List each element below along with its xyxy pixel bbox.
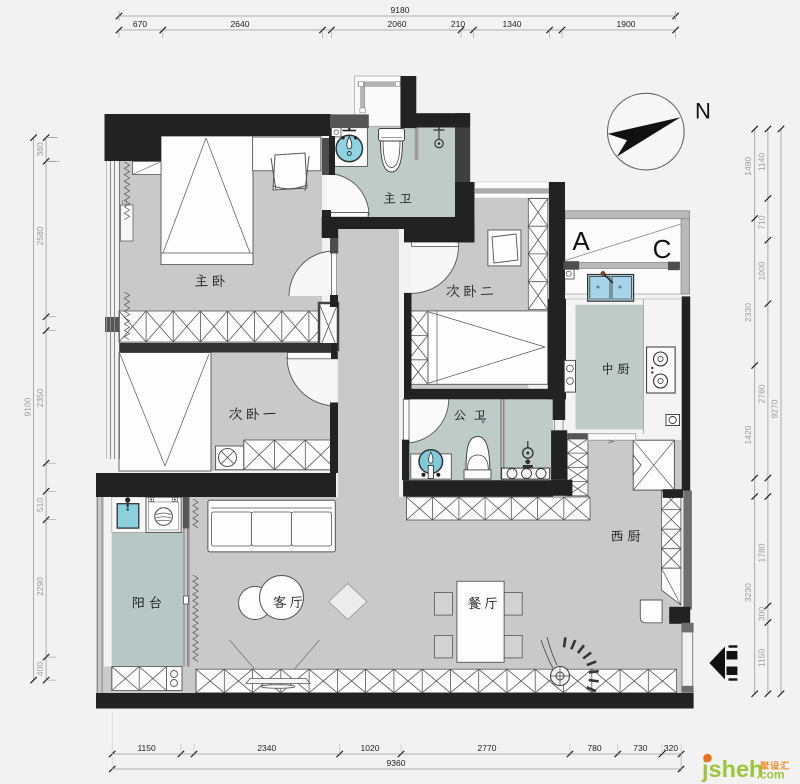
svg-text:1900: 1900 <box>617 19 636 29</box>
svg-text:9180: 9180 <box>391 5 410 15</box>
svg-text:780: 780 <box>587 743 601 753</box>
svg-text:2330: 2330 <box>743 303 753 322</box>
svg-text:400: 400 <box>35 662 45 676</box>
svg-text:1490: 1490 <box>743 157 753 176</box>
svg-text:2290: 2290 <box>35 577 45 596</box>
svg-text:N: N <box>695 99 711 124</box>
svg-text:2580: 2580 <box>35 226 45 245</box>
svg-text:2640: 2640 <box>231 19 250 29</box>
svg-text:1780: 1780 <box>756 543 766 562</box>
svg-text:380: 380 <box>35 142 45 156</box>
svg-text:2350: 2350 <box>35 388 45 407</box>
svg-text:1140: 1140 <box>756 153 766 172</box>
svg-text:1150: 1150 <box>137 743 156 753</box>
svg-text:3230: 3230 <box>743 583 753 602</box>
svg-text:1420: 1420 <box>743 425 753 444</box>
svg-text:2760: 2760 <box>756 384 766 403</box>
svg-text:2340: 2340 <box>257 743 276 753</box>
svg-text:A: A <box>572 226 590 256</box>
svg-text:670: 670 <box>133 19 147 29</box>
svg-text:730: 730 <box>633 743 647 753</box>
svg-text:320: 320 <box>664 743 678 753</box>
svg-text:210: 210 <box>451 19 465 29</box>
svg-text:510: 510 <box>35 498 45 512</box>
svg-text:9100: 9100 <box>23 397 33 416</box>
svg-text:1000: 1000 <box>756 261 766 280</box>
svg-text:1020: 1020 <box>361 743 380 753</box>
svg-text:2770: 2770 <box>478 743 497 753</box>
svg-text:.com: .com <box>757 768 785 782</box>
svg-text:9270: 9270 <box>770 399 780 418</box>
svg-text:2060: 2060 <box>388 19 407 29</box>
svg-text:1340: 1340 <box>503 19 522 29</box>
svg-text:1150: 1150 <box>756 649 766 668</box>
svg-text:9360: 9360 <box>387 758 406 768</box>
svg-text:710: 710 <box>756 215 766 229</box>
svg-text:C: C <box>653 234 672 264</box>
svg-text:300: 300 <box>756 607 766 621</box>
